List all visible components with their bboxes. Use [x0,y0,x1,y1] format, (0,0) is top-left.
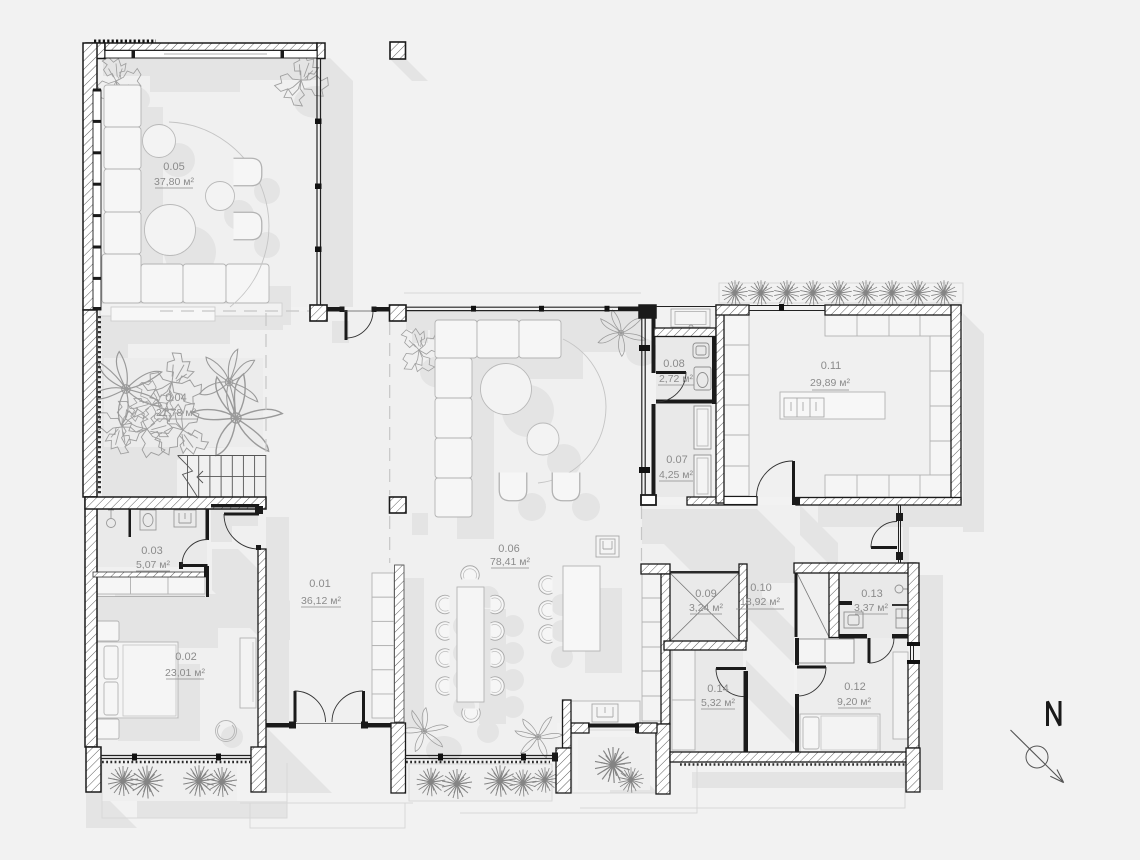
svg-text:0.08: 0.08 [663,358,684,370]
svg-text:0.10: 0.10 [750,582,771,594]
svg-text:29,89 м²: 29,89 м² [810,377,850,389]
svg-text:0.11: 0.11 [821,360,842,372]
svg-text:0.02: 0.02 [175,651,196,663]
svg-text:2,72 м²: 2,72 м² [659,373,694,385]
svg-text:5,07 м²: 5,07 м² [136,559,171,571]
svg-text:0.12: 0.12 [844,681,865,693]
svg-text:78,41 м²: 78,41 м² [490,556,530,568]
svg-text:37,80 м²: 37,80 м² [154,176,194,188]
svg-text:18,92 м²: 18,92 м² [740,596,780,608]
svg-text:36,12 м²: 36,12 м² [301,595,341,607]
svg-text:0.06: 0.06 [498,543,519,555]
svg-text:0.09: 0.09 [695,588,716,600]
svg-text:0.13: 0.13 [861,588,882,600]
svg-text:5,32 м²: 5,32 м² [701,697,736,709]
svg-text:0.03: 0.03 [141,545,162,557]
svg-text:0.04: 0.04 [165,392,186,404]
svg-text:3,24 м²: 3,24 м² [689,602,724,614]
svg-text:21,78 м²: 21,78 м² [156,407,196,419]
svg-text:0.05: 0.05 [163,161,184,173]
svg-text:3,37 м²: 3,37 м² [854,602,889,614]
svg-text:0.01: 0.01 [309,578,330,590]
svg-text:23,01 м²: 23,01 м² [165,667,205,679]
svg-text:0.07: 0.07 [666,454,687,466]
svg-text:0.14: 0.14 [707,683,728,695]
svg-text:4,25 м²: 4,25 м² [659,469,694,481]
svg-text:9,20 м²: 9,20 м² [837,696,872,708]
